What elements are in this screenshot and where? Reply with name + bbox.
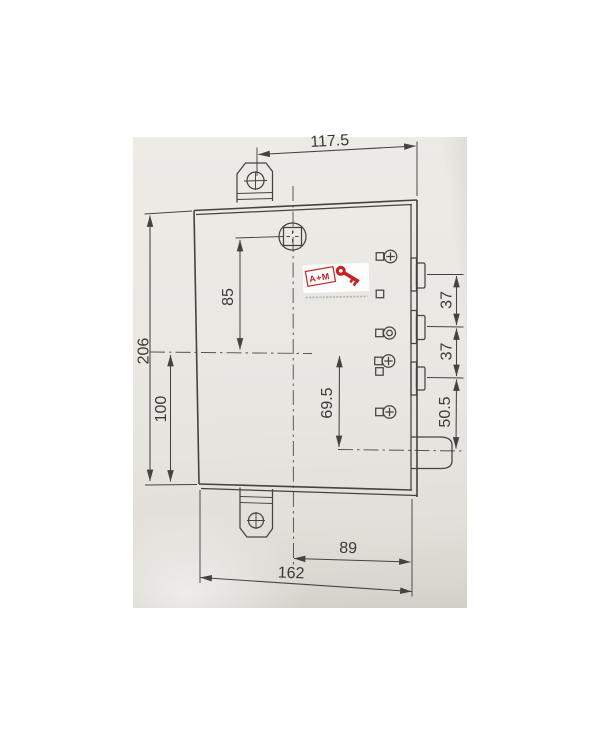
dim-line bbox=[201, 578, 412, 592]
vertical-centerline bbox=[293, 186, 294, 565]
screw-cross-2 bbox=[384, 357, 392, 365]
dim-label-206: 206 bbox=[136, 338, 153, 365]
faceplate-notch-2 bbox=[411, 311, 417, 344]
dim-line-50-5 bbox=[456, 380, 457, 449]
dimension-center-to-latch: 69.5 bbox=[319, 356, 340, 447]
lock-case bbox=[194, 200, 417, 497]
dimension-case-height: 206 bbox=[136, 211, 198, 485]
dimension-center-to-right: 89 bbox=[294, 499, 412, 597]
spindle-center-marks bbox=[287, 231, 299, 243]
bottom-mounting-tab bbox=[240, 488, 273, 538]
square-hole-2 bbox=[376, 290, 384, 298]
dimension-case-width: 162 bbox=[200, 490, 412, 592]
dim-label-37-bottom: 37 bbox=[439, 343, 456, 361]
dim-label-162: 162 bbox=[278, 565, 305, 583]
ext-line bbox=[236, 237, 284, 239]
dim-line bbox=[339, 356, 340, 447]
dim-label-117-5: 117.5 bbox=[310, 132, 350, 151]
ext-line bbox=[427, 378, 464, 379]
dimension-bolt-spacing: 37 37 50.5 bbox=[427, 275, 464, 449]
dim-label-100: 100 bbox=[153, 396, 170, 423]
top-mounting-tab bbox=[237, 163, 273, 203]
top-tab-hole-crosshair bbox=[244, 172, 267, 191]
horizontal-centerline bbox=[150, 352, 312, 354]
ext-line bbox=[427, 327, 464, 328]
faceplate-notch-1 bbox=[411, 258, 417, 291]
dim-label-69-5: 69.5 bbox=[319, 387, 336, 418]
case-left-edge bbox=[194, 211, 199, 485]
faceplate-notch-3 bbox=[411, 362, 417, 395]
screw-cross-3 bbox=[385, 408, 393, 416]
square-hole-1 bbox=[376, 253, 384, 261]
square-hole-5 bbox=[376, 368, 384, 376]
ext-line bbox=[145, 485, 197, 486]
bottom-tab-fold-line bbox=[240, 497, 273, 498]
dim-label-89: 89 bbox=[339, 540, 357, 557]
top-tab-fold-line-2 bbox=[237, 199, 273, 200]
dim-line bbox=[294, 559, 411, 563]
cylinder-hole-inner bbox=[387, 330, 393, 336]
square-hole-3 bbox=[376, 329, 384, 337]
top-tab-outline bbox=[237, 163, 273, 203]
square-hole-4 bbox=[375, 357, 383, 365]
ext-line bbox=[145, 211, 193, 214]
cylinder-hole-icon bbox=[384, 327, 396, 339]
square-hole-6 bbox=[376, 408, 384, 416]
spindle-hole bbox=[279, 223, 306, 250]
screw-cross-1 bbox=[386, 252, 394, 260]
fine-print-line bbox=[306, 295, 368, 298]
top-tab-fold-line bbox=[237, 193, 273, 194]
dim-label-37-top: 37 bbox=[439, 291, 456, 309]
interior-symbols bbox=[375, 250, 397, 418]
latch-centerline bbox=[338, 450, 464, 452]
spindle-square bbox=[284, 228, 302, 246]
product-photo: 117.5 206 100 85 69.5 bbox=[0, 0, 600, 745]
dim-label-50-5: 50.5 bbox=[437, 396, 454, 427]
dimension-center-to-bottom: 100 bbox=[153, 355, 171, 482]
dimension-top-width: 117.5 bbox=[257, 132, 417, 196]
dimension-spindle-to-center: 85 bbox=[220, 237, 283, 350]
dim-label-85: 85 bbox=[220, 288, 237, 306]
brand-logo: A+M bbox=[303, 263, 370, 299]
lock-dimension-diagram: 117.5 206 100 85 69.5 bbox=[0, 0, 600, 745]
bottom-tab-fold-line-2 bbox=[240, 503, 273, 504]
bottom-tab-hole-crosshair bbox=[247, 512, 265, 529]
